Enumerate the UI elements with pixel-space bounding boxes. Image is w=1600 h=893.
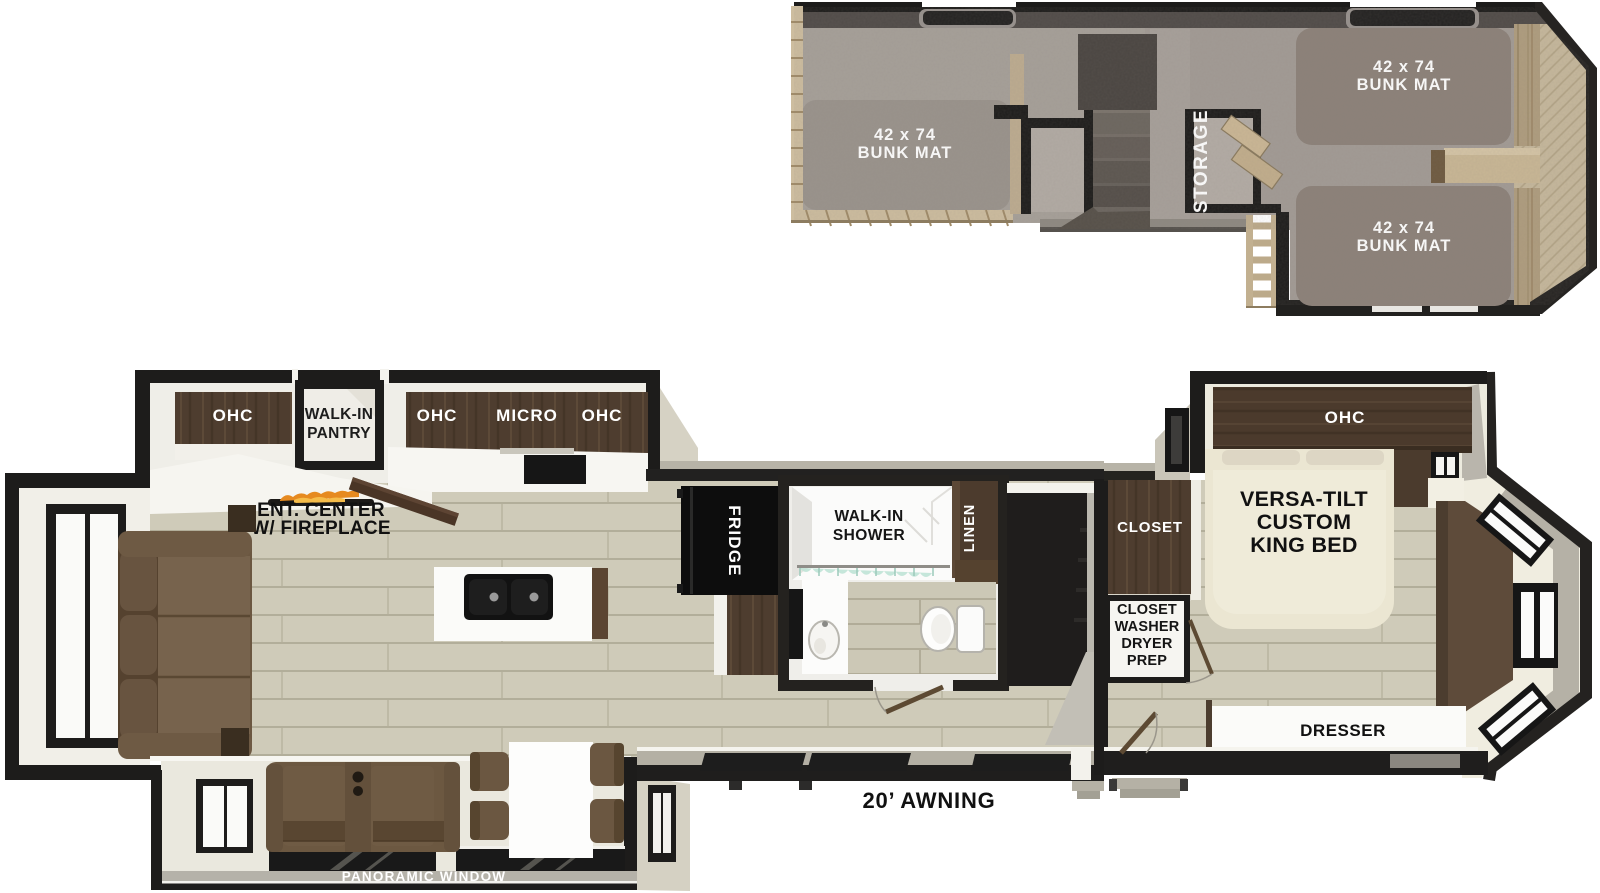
svg-text:WASHER: WASHER [1115,619,1180,635]
svg-text:WALK-IN: WALK-IN [305,406,373,423]
svg-text:OHC: OHC [417,406,458,425]
svg-text:MICRO: MICRO [496,406,558,425]
svg-text:W/ FIREPLACE: W/ FIREPLACE [251,518,391,539]
svg-text:OHC: OHC [1325,408,1366,427]
svg-text:VERSA-TILT: VERSA-TILT [1240,487,1368,511]
svg-text:OHC: OHC [213,406,254,425]
svg-text:20’ AWNING: 20’ AWNING [862,788,995,813]
svg-text:WALK-IN: WALK-IN [834,508,903,525]
svg-text:LINEN: LINEN [962,504,978,553]
svg-text:DRESSER: DRESSER [1300,721,1386,740]
svg-text:PANORAMIC WINDOW: PANORAMIC WINDOW [342,869,506,884]
svg-text:OHC: OHC [582,406,623,425]
svg-text:PREP: PREP [1127,653,1167,669]
svg-text:CUSTOM: CUSTOM [1257,510,1352,534]
svg-text:SHOWER: SHOWER [833,527,905,544]
svg-text:FRIDGE: FRIDGE [725,505,744,576]
svg-text:PANTRY: PANTRY [307,425,371,442]
svg-text:DRYER: DRYER [1121,636,1173,652]
svg-text:CLOSET: CLOSET [1117,519,1183,536]
svg-text:CLOSET: CLOSET [1117,602,1177,618]
svg-text:KING BED: KING BED [1250,533,1358,557]
